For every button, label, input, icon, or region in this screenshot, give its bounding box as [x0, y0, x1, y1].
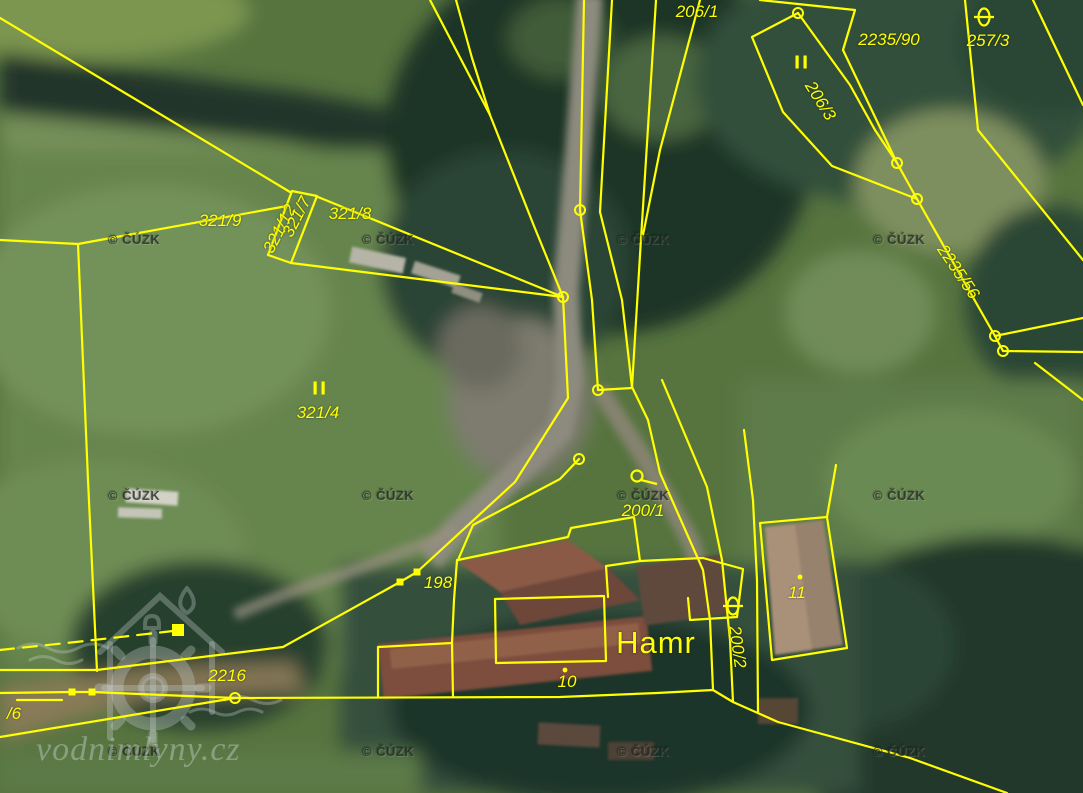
cuzk-watermark: © ČÚZK — [873, 488, 925, 503]
cuzk-watermark: © ČÚZK — [362, 744, 414, 759]
boundary-point-square-icon — [414, 569, 421, 576]
cuzk-watermark: © ČÚZK — [617, 488, 669, 503]
cuzk-watermark: © ČÚZK — [617, 232, 669, 247]
boundary-point-square-icon — [89, 689, 96, 696]
landuse-parallel-marker-icon — [804, 56, 807, 69]
parcel-label-321-8: 321/8 — [329, 204, 372, 224]
parcel-label-206-1: 206/1 — [676, 2, 719, 22]
parcel-label-321-9: 321/9 — [199, 211, 242, 231]
parcel-label--6: /6 — [7, 704, 21, 724]
boundary-point-square-icon — [397, 579, 404, 586]
spring-marker-icon — [641, 480, 657, 484]
parcel-label-11: 11 — [788, 583, 806, 603]
spring-marker-icon — [632, 471, 643, 482]
landuse-parallel-marker-icon — [796, 56, 799, 69]
cuzk-watermark: © ČÚZK — [873, 232, 925, 247]
parcel-label-257-3: 257/3 — [967, 31, 1010, 51]
cuzk-watermark: © ČÚZK — [108, 232, 160, 247]
parcel-label-hamr: Hamr — [616, 625, 696, 661]
cuzk-watermark: © ČÚZK — [362, 488, 414, 503]
cuzk-watermark: © ČÚZK — [362, 232, 414, 247]
cadastral-map-canvas[interactable]: 206/12235/90257/3206/32235/56321/9321/12… — [0, 0, 1083, 793]
landuse-parallel-marker-icon — [314, 382, 317, 395]
vodnimlyny-watermark-text: vodnimlyny.cz — [36, 731, 241, 769]
reference-point-square-icon — [172, 624, 184, 636]
building-dot-icon — [798, 575, 803, 580]
cuzk-watermark: © ČÚZK — [617, 744, 669, 759]
cuzk-watermark: © ČÚZK — [873, 744, 925, 759]
parcel-label-2216: 2216 — [208, 666, 246, 686]
parcel-label-10: 10 — [558, 672, 577, 692]
cadastral-lines-layer — [0, 0, 1083, 793]
landuse-parallel-marker-icon — [322, 382, 325, 395]
parcel-label-198: 198 — [424, 573, 452, 593]
cuzk-watermark: © ČÚZK — [108, 488, 160, 503]
parcel-label-200-1: 200/1 — [622, 501, 665, 521]
parcel-label-2235-90: 2235/90 — [858, 30, 919, 50]
boundary-point-square-icon — [69, 689, 76, 696]
parcel-label-321-4: 321/4 — [297, 403, 340, 423]
